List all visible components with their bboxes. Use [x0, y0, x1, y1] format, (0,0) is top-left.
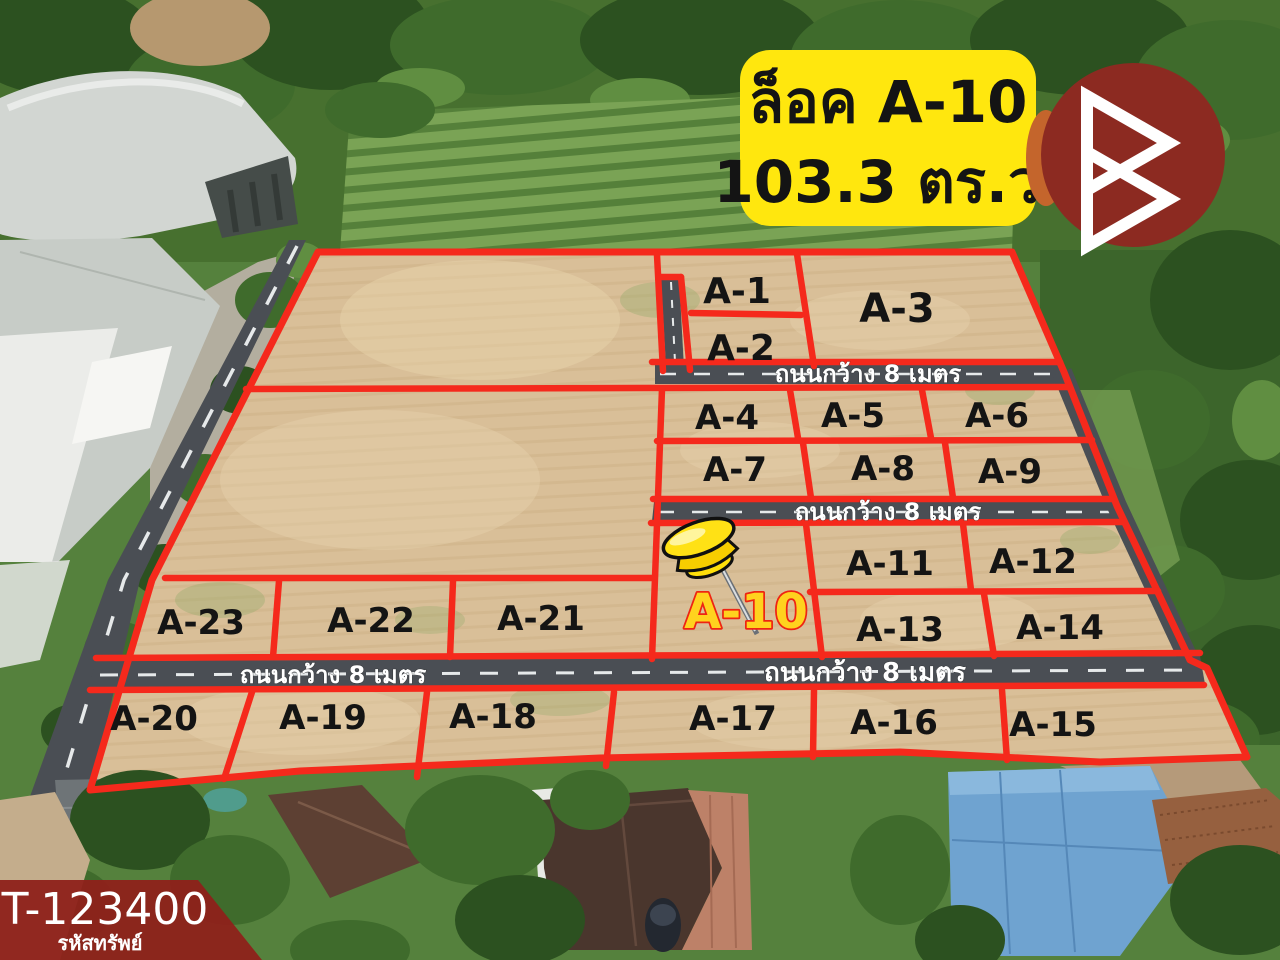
plot-label-a-23: A-23 [157, 603, 245, 643]
property-code-label: รหัสทรัพย์ [58, 931, 143, 955]
plot-label-a-20: A-20 [110, 699, 198, 739]
plot-label-a-18: A-18 [449, 697, 537, 737]
plot-label-a-8: A-8 [851, 449, 915, 489]
plot-label-a-12: A-12 [989, 542, 1077, 582]
plot-label-a-17: A-17 [689, 699, 777, 739]
plot-label-a-13: A-13 [856, 610, 944, 650]
property-code: T-123400 [1, 884, 209, 935]
banner-line1: ล็อค A-10 [748, 67, 1027, 136]
plot-label-a-22: A-22 [327, 601, 415, 641]
plot-label-a-7: A-7 [703, 450, 767, 490]
plot-label-a-4: A-4 [695, 398, 759, 438]
plot-label-a-15: A-15 [1009, 705, 1097, 745]
plot-label-a-9: A-9 [978, 452, 1042, 492]
plot-label-a-14: A-14 [1016, 608, 1104, 648]
plot-label-a-6: A-6 [965, 396, 1029, 436]
road-label-2: ถนนกว้าง 8 เมตร [795, 498, 982, 526]
road-label-3-right: ถนนกว้าง 8 เมตร [764, 658, 966, 688]
land-listing-graphic: ถนนกว้าง 8 เมตร ถนนกว้าง 8 เมตร ถนนกว้าง… [0, 0, 1280, 960]
plot-label-a-2: A-2 [707, 328, 775, 369]
road-label-3-left: ถนนกว้าง 8 เมตร [240, 661, 427, 689]
plot-label-a-1: A-1 [703, 271, 771, 312]
plot-label-a-19: A-19 [279, 698, 367, 738]
plot-label-a-16: A-16 [850, 703, 938, 743]
plot-label-a-3: A-3 [859, 286, 934, 332]
road-label-1: ถนนกว้าง 8 เมตร [775, 360, 962, 388]
plot-label-a-11: A-11 [846, 544, 934, 584]
aerial-photo-scene: ถนนกว้าง 8 เมตร ถนนกว้าง 8 เมตร ถนนกว้าง… [0, 0, 1280, 960]
plot-label-a-21: A-21 [497, 599, 585, 639]
title-banner: ล็อค A-10 103.3 ตร.ว. [713, 50, 1062, 226]
plot-label-a-10-highlighted: A-10 [684, 584, 808, 640]
plot-label-a-5: A-5 [821, 396, 885, 436]
banner-line2: 103.3 ตร.ว. [713, 148, 1062, 216]
